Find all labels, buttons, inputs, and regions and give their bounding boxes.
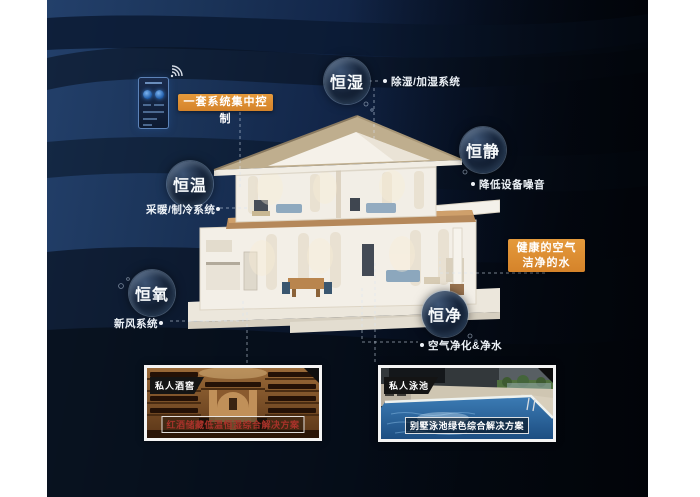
bullet-dot xyxy=(159,321,163,325)
corner-ribbon xyxy=(304,368,319,383)
bubble-label: 恒净 xyxy=(428,302,462,326)
bubble-constant-oxygen: 恒氧 xyxy=(129,270,175,316)
central-control-callout: 一套系统集中控制 xyxy=(178,94,273,111)
bubble-label: 恒静 xyxy=(466,138,500,162)
bubble-constant-quiet: 恒静 xyxy=(460,127,506,173)
card-caption-wine: 红酒储藏低温恒湿综合解决方案 xyxy=(161,416,304,433)
bullet-dot xyxy=(471,182,475,186)
label-dehumidify-system: 除湿/加湿系统 xyxy=(391,74,460,89)
clean-water-line: 洁净的水 xyxy=(508,256,585,271)
wine-cellar-card: 私人酒窖 红酒储藏低温恒湿综合解决方案 xyxy=(144,365,322,441)
bubble-constant-temperature: 恒温 xyxy=(167,161,213,207)
label-air-water-purification: 空气净化&净水 xyxy=(428,338,502,353)
healthy-air-water-callout: 健康的空气 洁净的水 xyxy=(508,239,585,272)
bubble-label: 恒氧 xyxy=(135,281,169,305)
bubble-constant-purity: 恒净 xyxy=(422,291,468,337)
bubble-label: 恒湿 xyxy=(330,69,364,93)
corner-ribbon xyxy=(538,368,553,383)
panel-dial-icon xyxy=(143,90,152,99)
panel-header-bar xyxy=(145,82,162,84)
healthy-air-line: 健康的空气 xyxy=(508,241,585,256)
bubble-constant-humidity: 恒湿 xyxy=(324,58,370,104)
card-caption-pool: 别墅泳池绿色综合解决方案 xyxy=(405,417,529,434)
label-fresh-air-system: 新风系统 xyxy=(114,316,158,331)
bullet-dot xyxy=(420,343,424,347)
bubble-label: 恒温 xyxy=(173,172,207,196)
smart-panel-icon xyxy=(138,77,169,129)
infographic-poster: 一套系统集中控制 健康的空气 洁净的水 恒湿 恒静 恒温 恒氧 恒净 除湿/加湿… xyxy=(0,0,700,497)
wifi-icon xyxy=(169,63,185,79)
label-noise-reduction: 降低设备噪音 xyxy=(479,177,545,192)
pool-card: 私人泳池 别墅泳池绿色综合解决方案 xyxy=(378,365,556,442)
bullet-dot xyxy=(383,79,387,83)
label-heating-cooling-system: 采暖/制冷系统 xyxy=(146,202,215,217)
bullet-dot xyxy=(216,207,220,211)
panel-dial-icon xyxy=(155,90,164,99)
